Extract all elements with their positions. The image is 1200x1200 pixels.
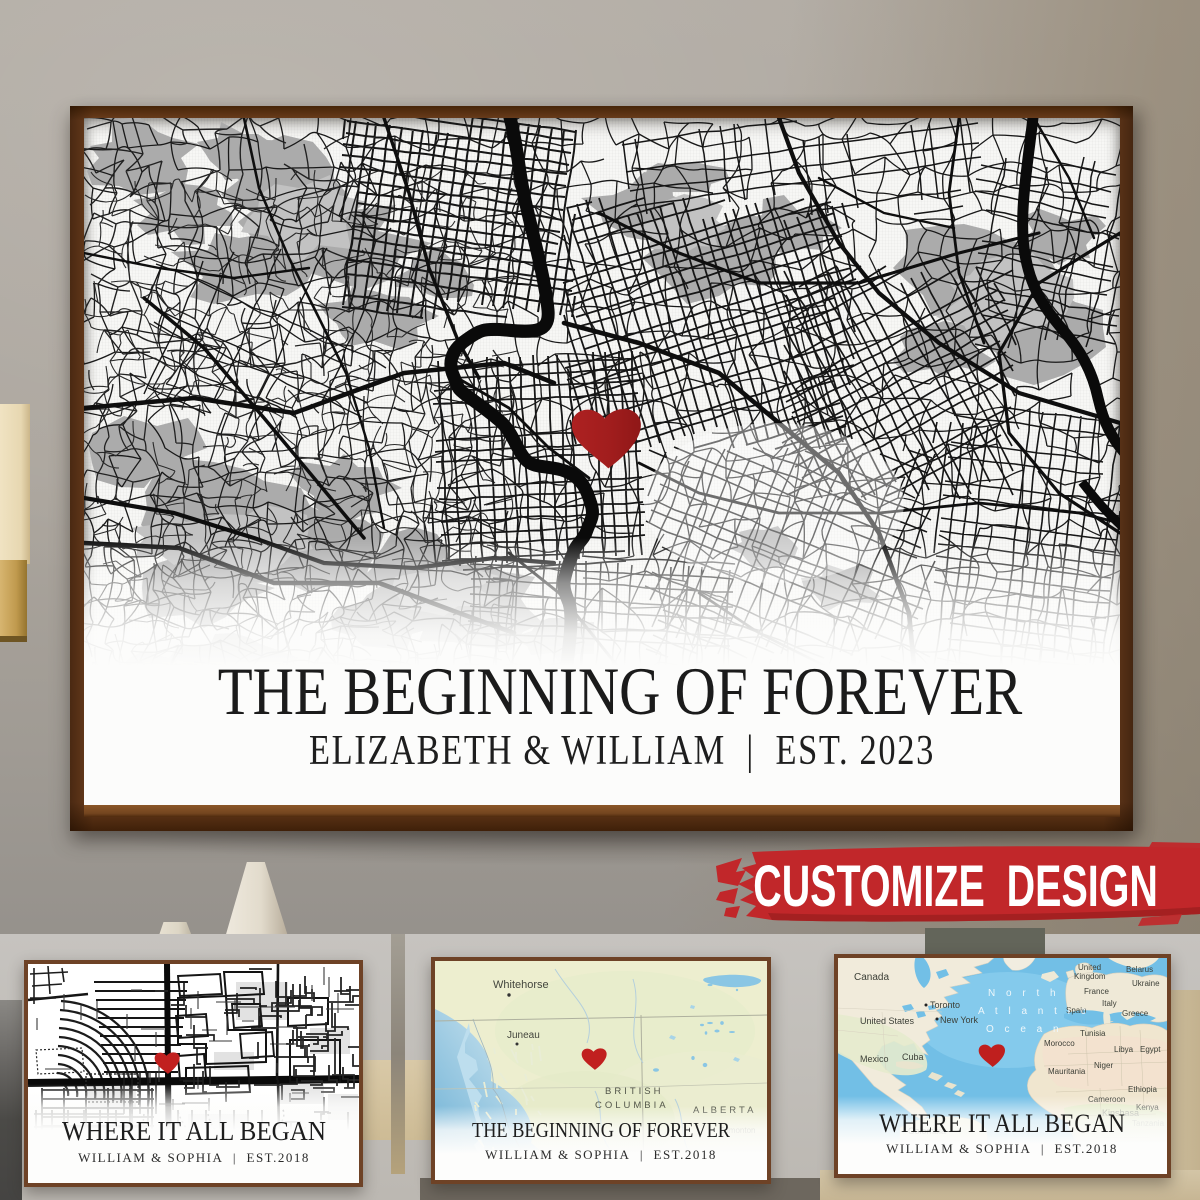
- svg-text:N o r t h: N o r t h: [988, 988, 1060, 999]
- svg-text:A t l a n t i c: A t l a n t i c: [978, 1006, 1090, 1017]
- svg-text:Canada: Canada: [854, 972, 889, 983]
- svg-text:Tunisia: Tunisia: [1080, 1029, 1106, 1038]
- svg-text:United: United: [1078, 963, 1101, 972]
- svg-text:Mauritania: Mauritania: [1048, 1067, 1086, 1076]
- svg-text:Greece: Greece: [1122, 1009, 1149, 1018]
- svg-text:Italy: Italy: [1102, 999, 1117, 1008]
- svg-text:Kingdom: Kingdom: [1074, 972, 1106, 981]
- svg-text:WHERE IT ALL BEGAN: WHERE IT ALL BEGAN: [62, 1116, 326, 1146]
- svg-text:Mexico: Mexico: [860, 1054, 889, 1064]
- svg-text:WHERE IT ALL BEGAN: WHERE IT ALL BEGAN: [879, 1109, 1125, 1138]
- svg-text:WILLIAM & SOPHIA | EST.2018: WILLIAM & SOPHIA | EST.2018: [78, 1150, 310, 1165]
- svg-text:New York: New York: [940, 1015, 979, 1025]
- svg-text:Ethiopia: Ethiopia: [1128, 1085, 1157, 1094]
- svg-text:Libya: Libya: [1114, 1045, 1134, 1054]
- svg-text:United States: United States: [860, 1016, 915, 1026]
- svg-text:BRITISH: BRITISH: [605, 1086, 663, 1097]
- svg-text:WILLIAM & SOPHIA | EST.2018: WILLIAM & SOPHIA | EST.2018: [485, 1147, 717, 1162]
- svg-text:Niger: Niger: [1094, 1061, 1113, 1070]
- svg-text:WILLIAM & SOPHIA | EST.2018: WILLIAM & SOPHIA | EST.2018: [886, 1141, 1118, 1156]
- svg-text:THE BEGINNING OF FOREVER: THE BEGINNING OF FOREVER: [472, 1118, 730, 1142]
- svg-text:Cuba: Cuba: [902, 1052, 924, 1062]
- svg-text:Egypt: Egypt: [1140, 1045, 1161, 1054]
- svg-text:O c e a n: O c e a n: [986, 1024, 1063, 1035]
- svg-text:Morocco: Morocco: [1044, 1039, 1075, 1048]
- svg-text:Belarus: Belarus: [1126, 965, 1153, 974]
- svg-text:France: France: [1084, 987, 1109, 996]
- svg-text:Whitehorse: Whitehorse: [493, 979, 549, 991]
- svg-text:Juneau: Juneau: [507, 1030, 540, 1041]
- svg-text:Toronto: Toronto: [930, 1000, 960, 1010]
- svg-text:Ukraine: Ukraine: [1132, 979, 1160, 988]
